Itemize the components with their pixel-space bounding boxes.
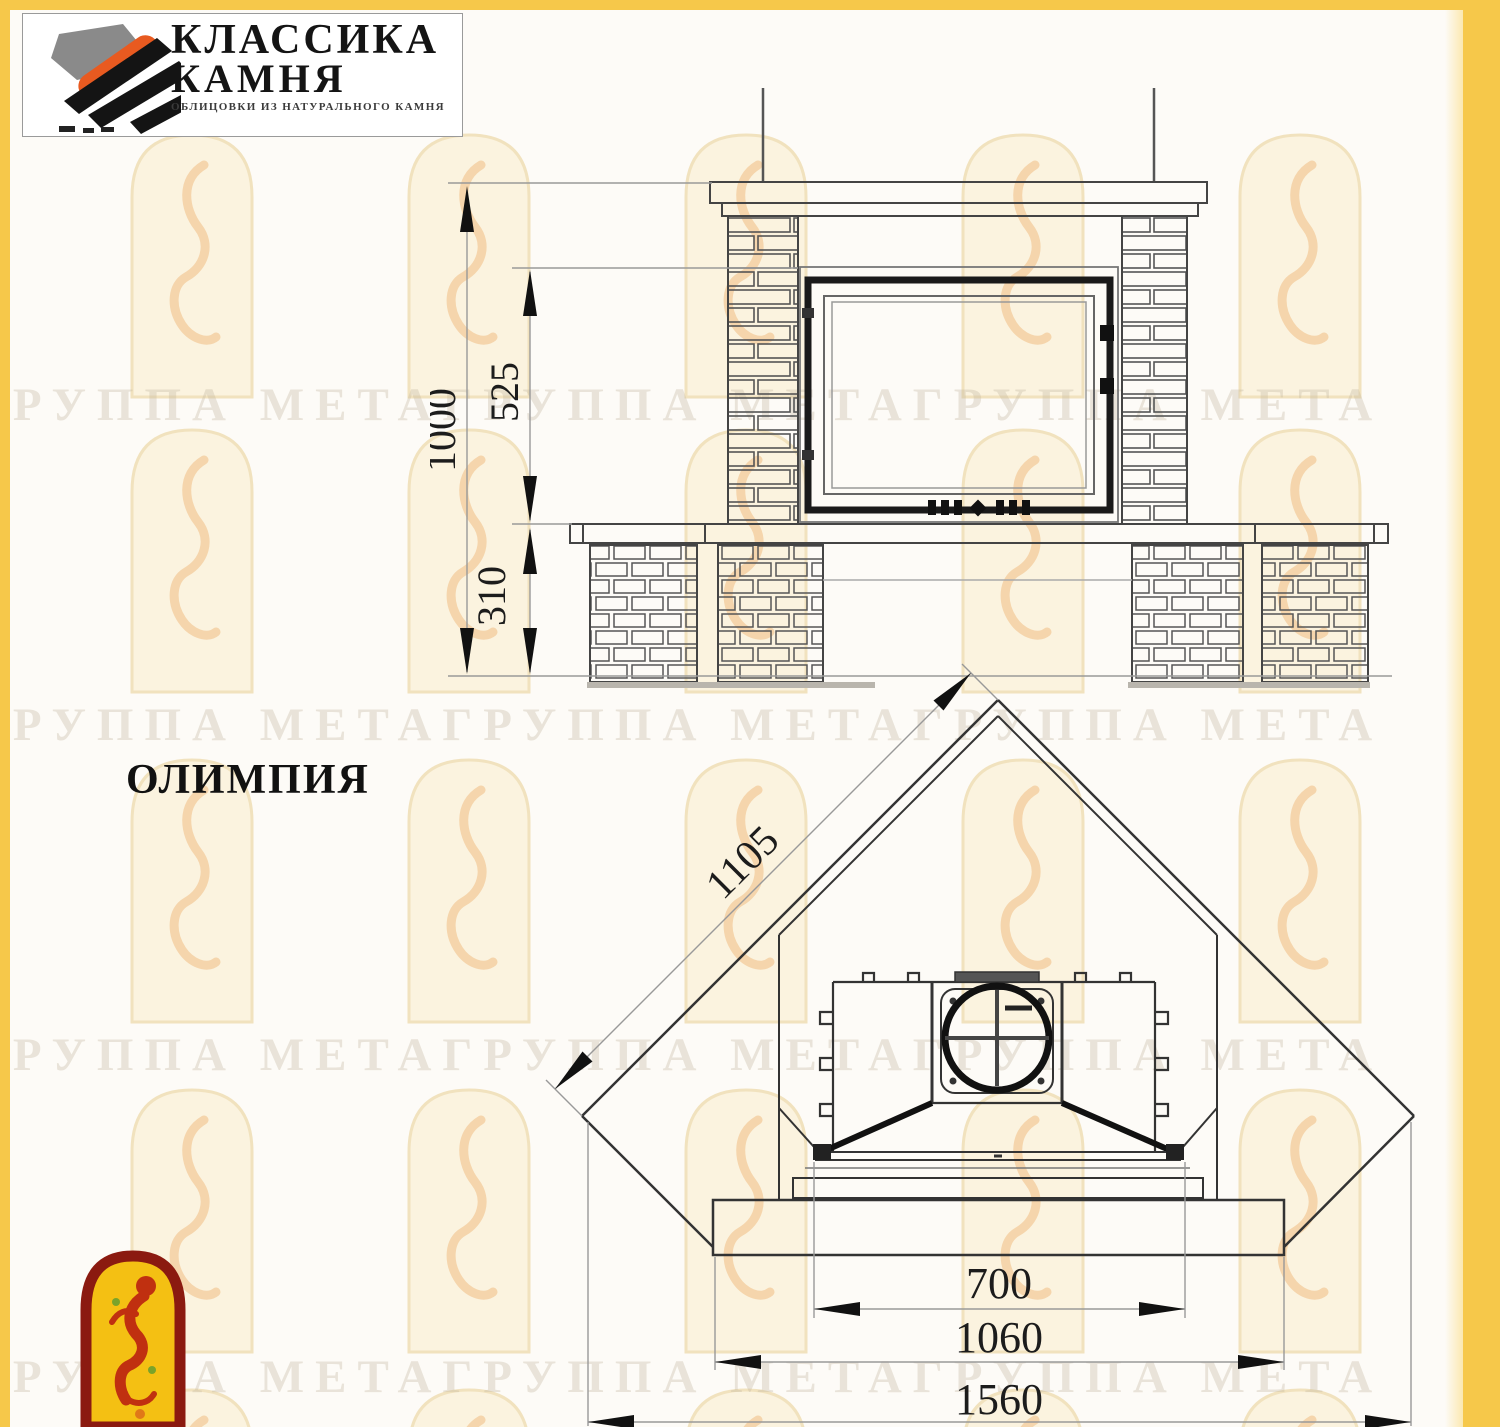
logo-title-line2: КАМНЯ bbox=[171, 60, 459, 98]
logo-subtitle: ОБЛИЦОВКИ ИЗ НАТУРАЛЬНОГО КАМНЯ bbox=[171, 101, 459, 113]
plan-dimensions: 1105 700 1060 1560 bbox=[546, 664, 1411, 1427]
door-glass bbox=[832, 302, 1086, 488]
plan-hearth bbox=[713, 1144, 1284, 1255]
air-vent-grille bbox=[928, 500, 1030, 517]
mantel-shelf bbox=[710, 182, 1207, 216]
door-handle-lower bbox=[1100, 378, 1114, 394]
firebox-door bbox=[800, 267, 1118, 522]
chimney-lines bbox=[763, 88, 1154, 183]
firebird-emblem-icon bbox=[78, 1248, 188, 1427]
brick-column-left bbox=[728, 216, 798, 524]
front-elevation-drawing: 1000 525 310 bbox=[430, 80, 1400, 695]
front-dimensions: 1000 525 310 bbox=[430, 183, 1392, 676]
door-hinge-lower bbox=[802, 450, 814, 460]
door-hinge-upper bbox=[802, 308, 814, 318]
plan-inner-walls bbox=[779, 716, 1217, 1200]
frame-top bbox=[0, 0, 1500, 10]
frame-left bbox=[0, 0, 10, 1427]
dim-label-525: 525 bbox=[482, 362, 527, 422]
dim-label-700: 700 bbox=[966, 1259, 1032, 1308]
hearth-shelf bbox=[570, 524, 1388, 543]
brick-column-right bbox=[1122, 216, 1187, 524]
plan-view-drawing: 1105 700 1060 1560 bbox=[540, 660, 1498, 1427]
plan-splayed-walls bbox=[822, 1103, 1174, 1152]
dim-label-1560: 1560 bbox=[955, 1375, 1043, 1424]
stone-logo-icon bbox=[31, 18, 181, 134]
logo-title-line1: КЛАССИКА bbox=[171, 20, 459, 60]
dim-label-310: 310 bbox=[469, 566, 514, 626]
model-name-title: ОЛИМПИЯ bbox=[126, 756, 370, 804]
flue-collar-tab bbox=[955, 972, 1039, 982]
company-logo: КЛАССИКА КАМНЯ ОБЛИЦОВКИ ИЗ НАТУРАЛЬНОГО… bbox=[22, 13, 463, 137]
dim-label-1105: 1105 bbox=[697, 817, 788, 908]
dim-label-1000: 1000 bbox=[430, 388, 465, 472]
flue-outlet bbox=[941, 972, 1053, 1093]
dim-label-1060: 1060 bbox=[955, 1313, 1043, 1362]
door-handle-upper bbox=[1100, 325, 1114, 341]
frame-right bbox=[1463, 0, 1500, 1427]
frame-gradient bbox=[1445, 0, 1463, 1427]
